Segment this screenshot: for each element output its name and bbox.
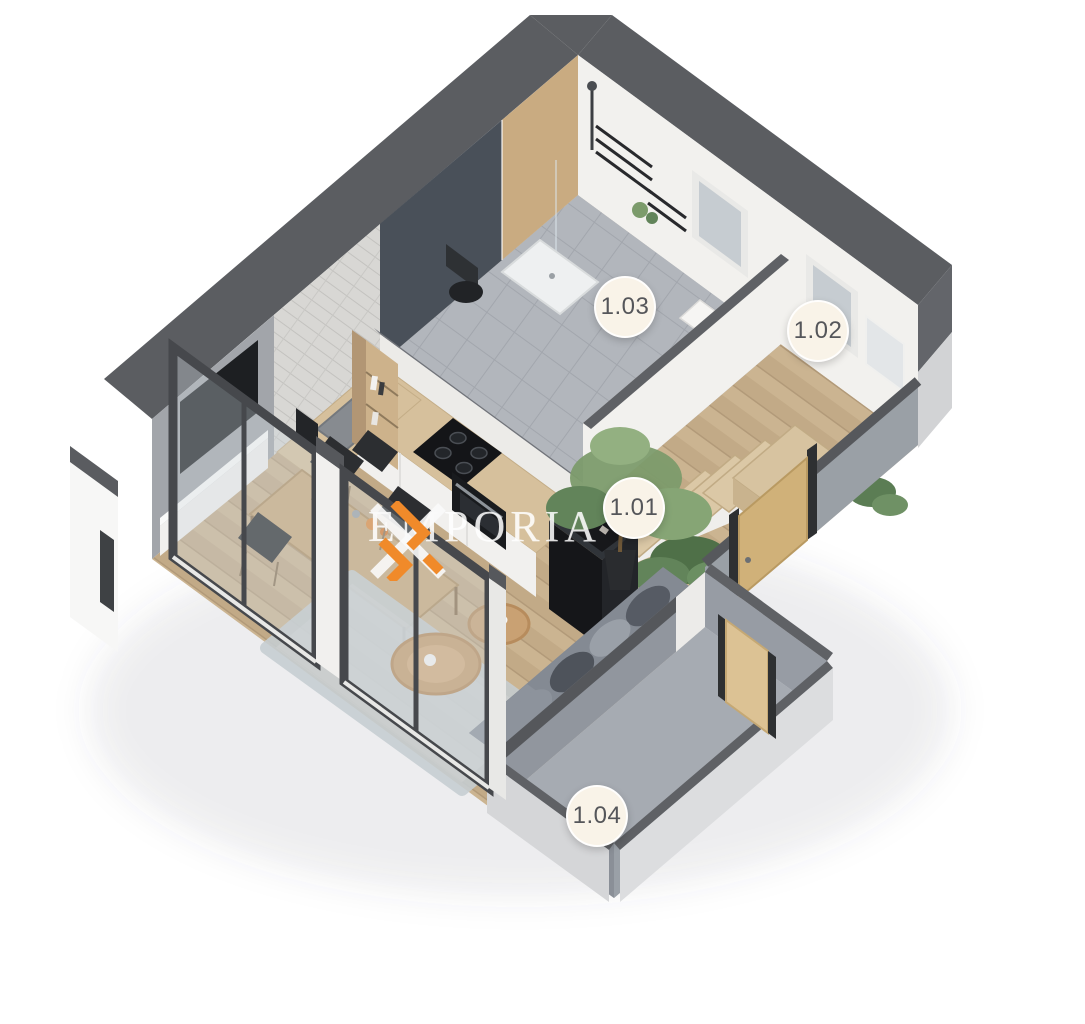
bathroom-plant xyxy=(632,202,648,218)
room-number: 1.03 xyxy=(601,293,650,321)
room-label-1-04: 1.04 xyxy=(566,785,628,847)
room-label-1-03: 1.03 xyxy=(594,276,656,338)
room-label-1-01: 1.01 xyxy=(603,477,665,539)
room-label-1-02: 1.02 xyxy=(787,300,849,362)
door-handle-icon xyxy=(745,557,751,563)
exterior-wall-stub xyxy=(70,446,118,652)
apartment-3d-render xyxy=(0,0,1085,1024)
room-number: 1.04 xyxy=(573,802,622,830)
room-number: 1.01 xyxy=(610,494,659,522)
room-number: 1.02 xyxy=(794,317,843,345)
floorplan-render: 1.01 1.02 1.03 1.04 EMPORIA xyxy=(0,0,1085,1024)
